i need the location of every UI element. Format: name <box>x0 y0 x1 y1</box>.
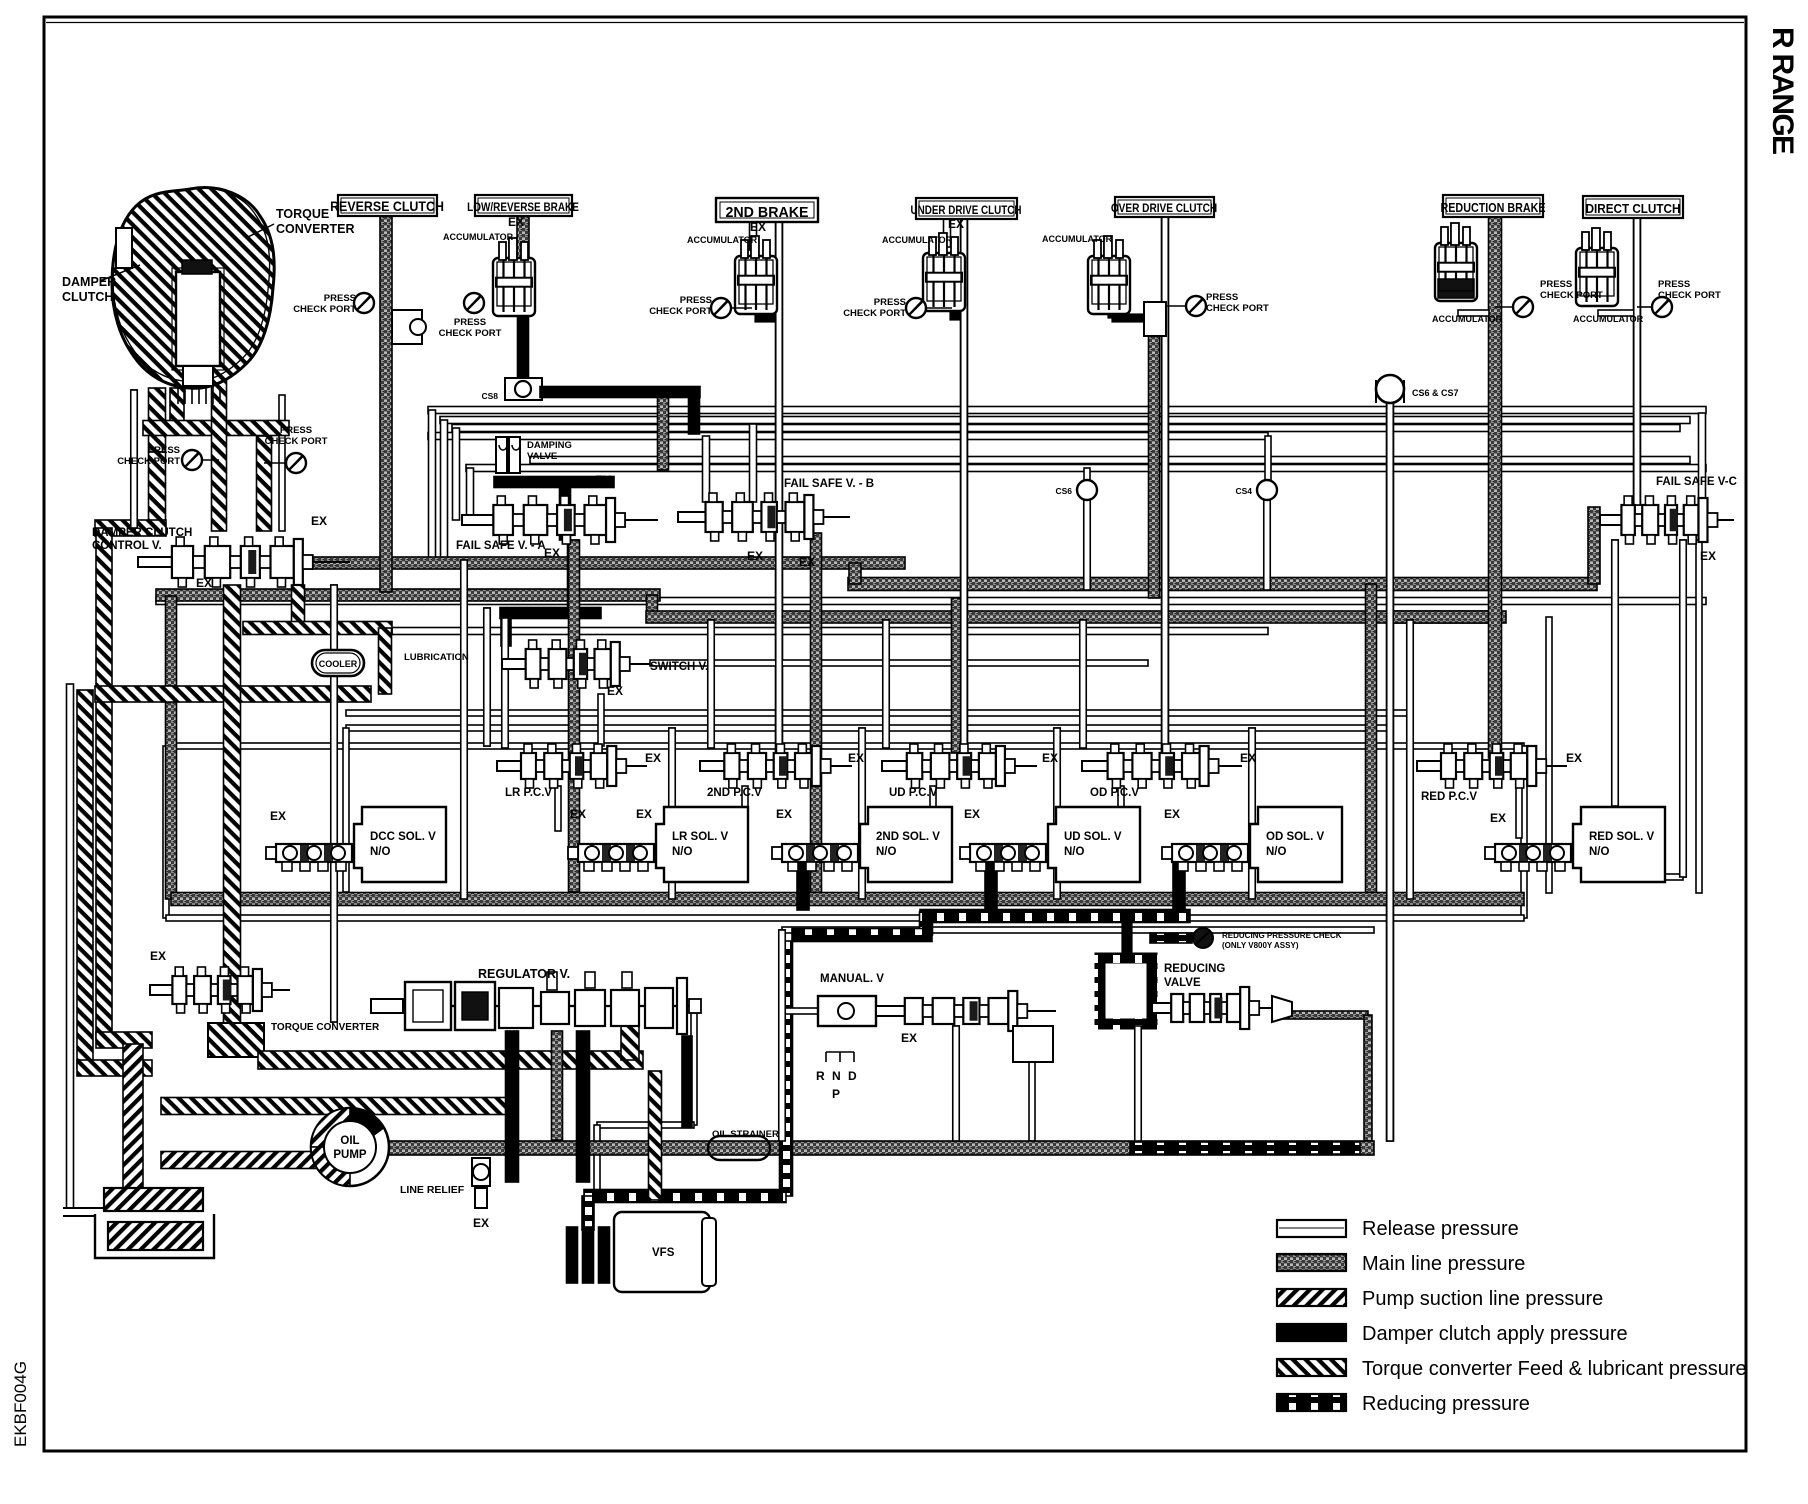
svg-text:LR P.C.V: LR P.C.V <box>505 787 552 799</box>
svg-text:EX: EX <box>1490 811 1506 825</box>
svg-text:EKBF004G: EKBF004G <box>11 1361 30 1447</box>
svg-text:CHECK PORT: CHECK PORT <box>293 304 356 315</box>
svg-text:EX: EX <box>901 1031 917 1045</box>
svg-text:(ONLY V800Y ASSY): (ONLY V800Y ASSY) <box>1222 941 1299 950</box>
svg-text:SWITCH V.: SWITCH V. <box>650 661 708 673</box>
svg-text:UD SOL. V: UD SOL. V <box>1064 831 1122 843</box>
svg-text:COOLER: COOLER <box>319 659 358 669</box>
svg-text:UD P.C.V: UD P.C.V <box>889 787 938 799</box>
svg-text:EX: EX <box>848 751 864 765</box>
svg-text:UNDER DRIVE CLUTCH: UNDER DRIVE CLUTCH <box>911 204 1022 217</box>
svg-text:Main line pressure: Main line pressure <box>1362 1253 1525 1275</box>
svg-text:N: N <box>832 1069 841 1083</box>
svg-text:CHECK PORT: CHECK PORT <box>843 308 906 319</box>
svg-text:EX: EX <box>473 1216 489 1230</box>
svg-text:EX: EX <box>645 751 661 765</box>
svg-text:EX: EX <box>776 807 792 821</box>
svg-text:EX: EX <box>964 807 980 821</box>
svg-text:RED SOL. V: RED SOL. V <box>1589 831 1655 843</box>
svg-text:PRESS: PRESS <box>280 425 312 436</box>
svg-text:CLUTCH: CLUTCH <box>62 290 113 304</box>
svg-text:REVERSE CLUTCH: REVERSE CLUTCH <box>330 199 444 215</box>
svg-text:ACCUMULATOR: ACCUMULATOR <box>687 235 758 245</box>
svg-text:REDUCTION BRAKE: REDUCTION BRAKE <box>1441 201 1546 215</box>
svg-text:R: R <box>816 1069 825 1083</box>
svg-text:DAMPING: DAMPING <box>527 440 572 451</box>
svg-text:EX: EX <box>607 684 623 698</box>
svg-text:PRESS: PRESS <box>454 317 486 328</box>
svg-text:PRESS: PRESS <box>1540 279 1572 290</box>
svg-text:EX: EX <box>311 514 327 528</box>
svg-text:EX: EX <box>1700 549 1716 563</box>
svg-text:FAIL SAFE V. - A: FAIL SAFE V. - A <box>456 540 546 552</box>
svg-text:CS4: CS4 <box>1235 486 1252 496</box>
svg-text:OVER DRIVE CLUTCH: OVER DRIVE CLUTCH <box>1111 202 1217 215</box>
svg-text:Reducing pressure: Reducing pressure <box>1362 1393 1530 1415</box>
svg-text:LUBRICATION: LUBRICATION <box>404 652 469 663</box>
svg-text:TORQUE CONVERTER: TORQUE CONVERTER <box>271 1022 380 1033</box>
svg-text:EX: EX <box>1164 807 1180 821</box>
svg-text:TORQUE: TORQUE <box>276 207 329 221</box>
svg-text:R RANGE: R RANGE <box>1766 27 1799 155</box>
svg-text:EX: EX <box>636 807 652 821</box>
svg-text:FAIL SAFE V-C: FAIL SAFE V-C <box>1656 476 1737 488</box>
svg-text:CS8: CS8 <box>481 391 498 401</box>
svg-text:EX: EX <box>948 217 964 231</box>
svg-text:PRESS: PRESS <box>324 293 356 304</box>
svg-text:PRESS: PRESS <box>874 297 906 308</box>
svg-text:ACCUMULATOR: ACCUMULATOR <box>443 232 514 242</box>
svg-text:EX: EX <box>508 215 524 229</box>
svg-text:2ND P.C.V: 2ND P.C.V <box>707 787 762 799</box>
svg-text:ACCUMULATOR: ACCUMULATOR <box>882 235 953 245</box>
svg-text:REDUCING PRESSURE CHECK: REDUCING PRESSURE CHECK <box>1222 931 1342 940</box>
svg-text:PRESS: PRESS <box>1658 279 1690 290</box>
svg-text:VALVE: VALVE <box>1164 977 1201 989</box>
svg-text:LR SOL. V: LR SOL. V <box>672 831 729 843</box>
svg-text:EX: EX <box>750 220 766 234</box>
svg-text:OIL STRAINER: OIL STRAINER <box>712 1129 779 1140</box>
svg-text:CHECK PORT: CHECK PORT <box>117 456 180 467</box>
svg-text:2ND SOL. V: 2ND SOL. V <box>876 831 940 843</box>
svg-text:LOW/REVERSE BRAKE: LOW/REVERSE BRAKE <box>467 201 579 214</box>
svg-text:P: P <box>832 1087 840 1101</box>
svg-text:RED P.C.V: RED P.C.V <box>1421 791 1477 803</box>
svg-text:CHECK PORT: CHECK PORT <box>1540 290 1603 301</box>
svg-text:D: D <box>848 1069 857 1083</box>
svg-text:CHECK PORT: CHECK PORT <box>1206 303 1269 314</box>
svg-text:EX: EX <box>1042 751 1058 765</box>
svg-text:CONVERTER: CONVERTER <box>276 222 354 236</box>
svg-text:PUMP: PUMP <box>333 1149 367 1161</box>
svg-text:CHECK PORT: CHECK PORT <box>1658 290 1721 301</box>
svg-text:ACCUMULATOR: ACCUMULATOR <box>1432 314 1503 324</box>
svg-text:DIRECT CLUTCH: DIRECT CLUTCH <box>1586 201 1681 216</box>
svg-text:CS6 & CS7: CS6 & CS7 <box>1412 388 1459 398</box>
svg-text:REGULATOR V.: REGULATOR V. <box>478 967 570 981</box>
svg-text:EX: EX <box>799 555 815 569</box>
svg-text:ACCUMULATOR: ACCUMULATOR <box>1573 314 1644 324</box>
svg-text:N/O: N/O <box>1064 846 1085 858</box>
svg-text:CHECK PORT: CHECK PORT <box>649 306 712 317</box>
svg-text:N/O: N/O <box>1589 846 1610 858</box>
svg-text:PRESS: PRESS <box>148 445 180 456</box>
svg-text:Torque converter Feed & lubric: Torque converter Feed & lubricant pressu… <box>1362 1358 1747 1380</box>
svg-text:OD P.C.V: OD P.C.V <box>1090 787 1139 799</box>
svg-text:ACCUMULATOR: ACCUMULATOR <box>1042 234 1113 244</box>
svg-text:EX: EX <box>1566 751 1582 765</box>
svg-text:N/O: N/O <box>876 846 897 858</box>
svg-text:EX: EX <box>544 546 560 560</box>
svg-text:OD SOL. V: OD SOL. V <box>1266 831 1324 843</box>
svg-text:FAIL SAFE V. - B: FAIL SAFE V. - B <box>784 478 874 490</box>
svg-text:CONTROL V.: CONTROL V. <box>92 540 162 552</box>
svg-text:N/O: N/O <box>370 846 391 858</box>
svg-text:EX: EX <box>196 576 212 590</box>
svg-text:VALVE: VALVE <box>527 451 557 462</box>
svg-text:OIL: OIL <box>340 1135 359 1147</box>
svg-text:PRESS: PRESS <box>680 295 712 306</box>
svg-text:Damper clutch apply pressure: Damper clutch apply pressure <box>1362 1323 1628 1345</box>
svg-text:Pump suction line pressure: Pump suction line pressure <box>1362 1288 1603 1310</box>
svg-text:MANUAL. V: MANUAL. V <box>820 973 884 985</box>
svg-text:Release pressure: Release pressure <box>1362 1218 1519 1240</box>
svg-text:REDUCING: REDUCING <box>1164 963 1225 975</box>
svg-text:EX: EX <box>747 549 763 563</box>
svg-text:EX: EX <box>270 809 286 823</box>
svg-text:EX: EX <box>150 949 166 963</box>
svg-text:VFS: VFS <box>652 1247 675 1259</box>
svg-text:CHECK PORT: CHECK PORT <box>439 328 502 339</box>
svg-text:EX: EX <box>1240 751 1256 765</box>
svg-text:2ND BRAKE: 2ND BRAKE <box>725 205 808 221</box>
svg-text:N/O: N/O <box>1266 846 1287 858</box>
svg-text:CS6: CS6 <box>1055 486 1072 496</box>
svg-text:PRESS: PRESS <box>1206 292 1238 303</box>
svg-text:EX: EX <box>570 807 586 821</box>
svg-text:LINE RELIEF: LINE RELIEF <box>400 1184 465 1196</box>
svg-text:DAMPER CLUTCH: DAMPER CLUTCH <box>92 527 192 539</box>
svg-text:CHECK PORT: CHECK PORT <box>265 436 328 447</box>
svg-text:DCC SOL. V: DCC SOL. V <box>370 831 436 843</box>
svg-text:EX: EX <box>595 473 611 487</box>
svg-text:N/O: N/O <box>672 846 693 858</box>
